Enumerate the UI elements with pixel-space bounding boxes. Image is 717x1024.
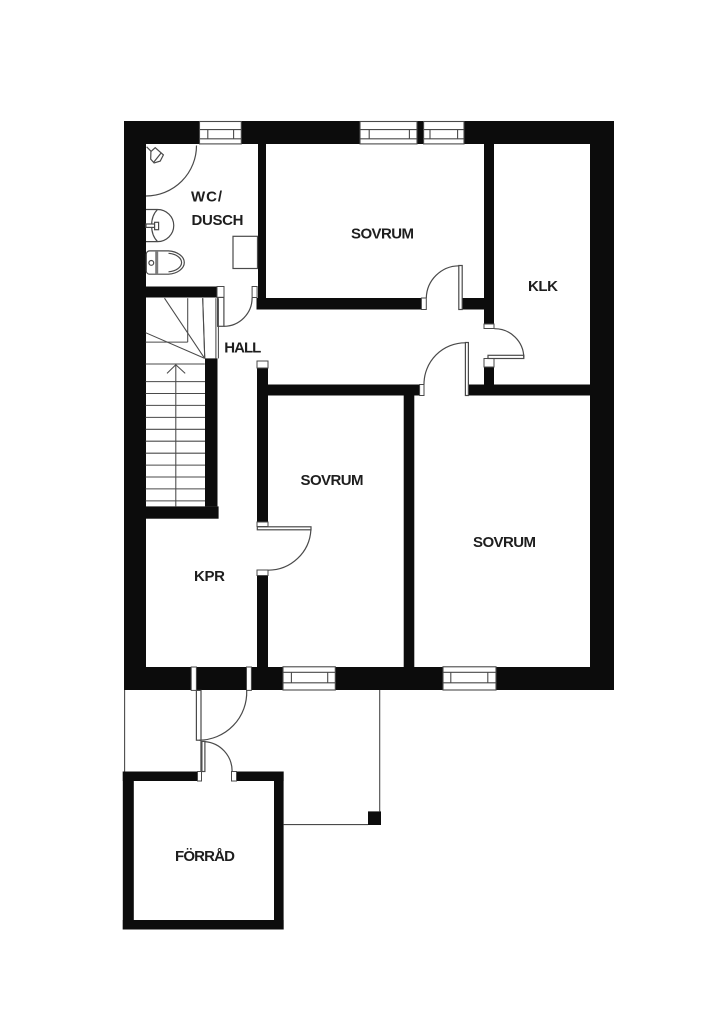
svg-text:DUSCH: DUSCH [192, 212, 244, 229]
svg-text:KLK: KLK [528, 278, 558, 295]
svg-text:KPR: KPR [194, 568, 225, 585]
svg-text:HALL: HALL [224, 339, 261, 356]
svg-text:FÖRRÅD: FÖRRÅD [175, 848, 235, 865]
svg-text:WC/: WC/ [191, 189, 223, 206]
svg-text:SOVRUM: SOVRUM [351, 225, 414, 242]
svg-text:SOVRUM: SOVRUM [301, 472, 364, 489]
svg-text:SOVRUM: SOVRUM [473, 534, 536, 551]
